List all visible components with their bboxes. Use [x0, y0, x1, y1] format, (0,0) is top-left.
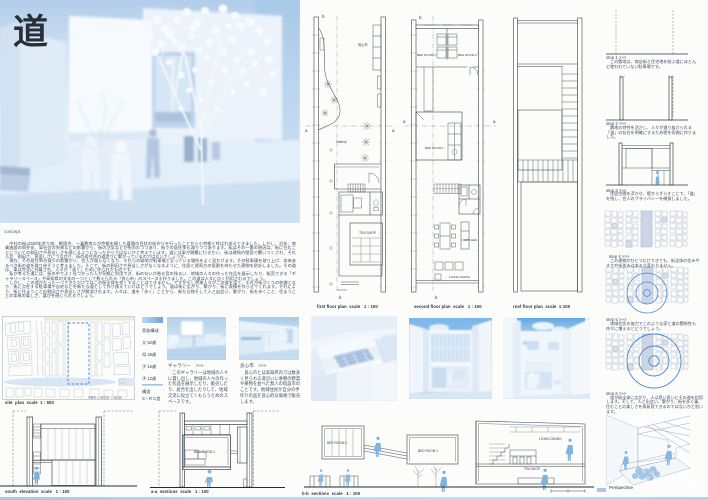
svg-text:BED ROOM 1: BED ROOM 1 — [418, 449, 438, 453]
svg-text:父 52歳: 父 52歳 — [142, 339, 157, 345]
svg-text:LIVING DINING: LIVING DINING — [449, 275, 471, 279]
svg-text:b: b — [322, 14, 325, 19]
svg-text:宅地等→以断工道 □ 商店街: 宅地等→以断工道 □ 商店街 — [88, 396, 122, 400]
svg-text:Gallery: Gallery — [336, 140, 347, 144]
svg-text:BED ROOM 2: BED ROOM 2 — [327, 441, 347, 445]
svg-text:構造: 構造 — [142, 388, 151, 395]
svg-text:a: a — [305, 128, 308, 133]
svg-text:S・R C造: S・R C造 — [142, 395, 161, 401]
svg-text:TEA SHOP: TEA SHOP — [359, 231, 377, 235]
svg-text:a: a — [392, 128, 395, 133]
svg-text:BED ROOM 2: BED ROOM 2 — [458, 53, 477, 57]
svg-text:a: a — [493, 119, 496, 124]
svg-text:a: a — [403, 119, 406, 124]
svg-text:子 15歳: 子 15歳 — [142, 363, 157, 369]
svg-text:BED ROOM 1: BED ROOM 1 — [425, 146, 444, 150]
svg-text:子 12歳: 子 12歳 — [142, 375, 157, 381]
svg-text:家族構成: 家族構成 — [142, 327, 159, 334]
svg-text:KITCHEN: KITCHEN — [464, 238, 477, 242]
svg-text:良心市: 良心市 — [358, 42, 368, 47]
svg-text:TEA SHOP: TEA SHOP — [524, 467, 540, 471]
svg-text:BED ROOM 1: BED ROOM 1 — [194, 450, 215, 454]
svg-text:BED ROOM 3: BED ROOM 3 — [417, 53, 436, 57]
svg-text:母 45歳: 母 45歳 — [142, 351, 157, 358]
svg-text:b: b — [339, 295, 342, 300]
svg-text:b: b — [435, 295, 438, 300]
svg-text:LIVING DINING: LIVING DINING — [539, 437, 562, 441]
svg-text:b: b — [419, 15, 422, 20]
